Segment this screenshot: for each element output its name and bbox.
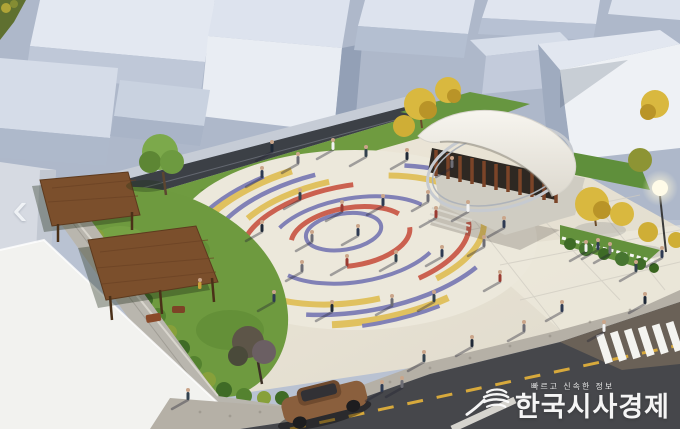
carousel-prev-arrow[interactable]: ‹ <box>6 186 34 234</box>
plaza-rendering-image: ‹ 빠르고 신속한 정보 한국시사경제 <box>0 0 680 429</box>
rendering-scene <box>0 0 680 429</box>
bench <box>172 306 185 313</box>
